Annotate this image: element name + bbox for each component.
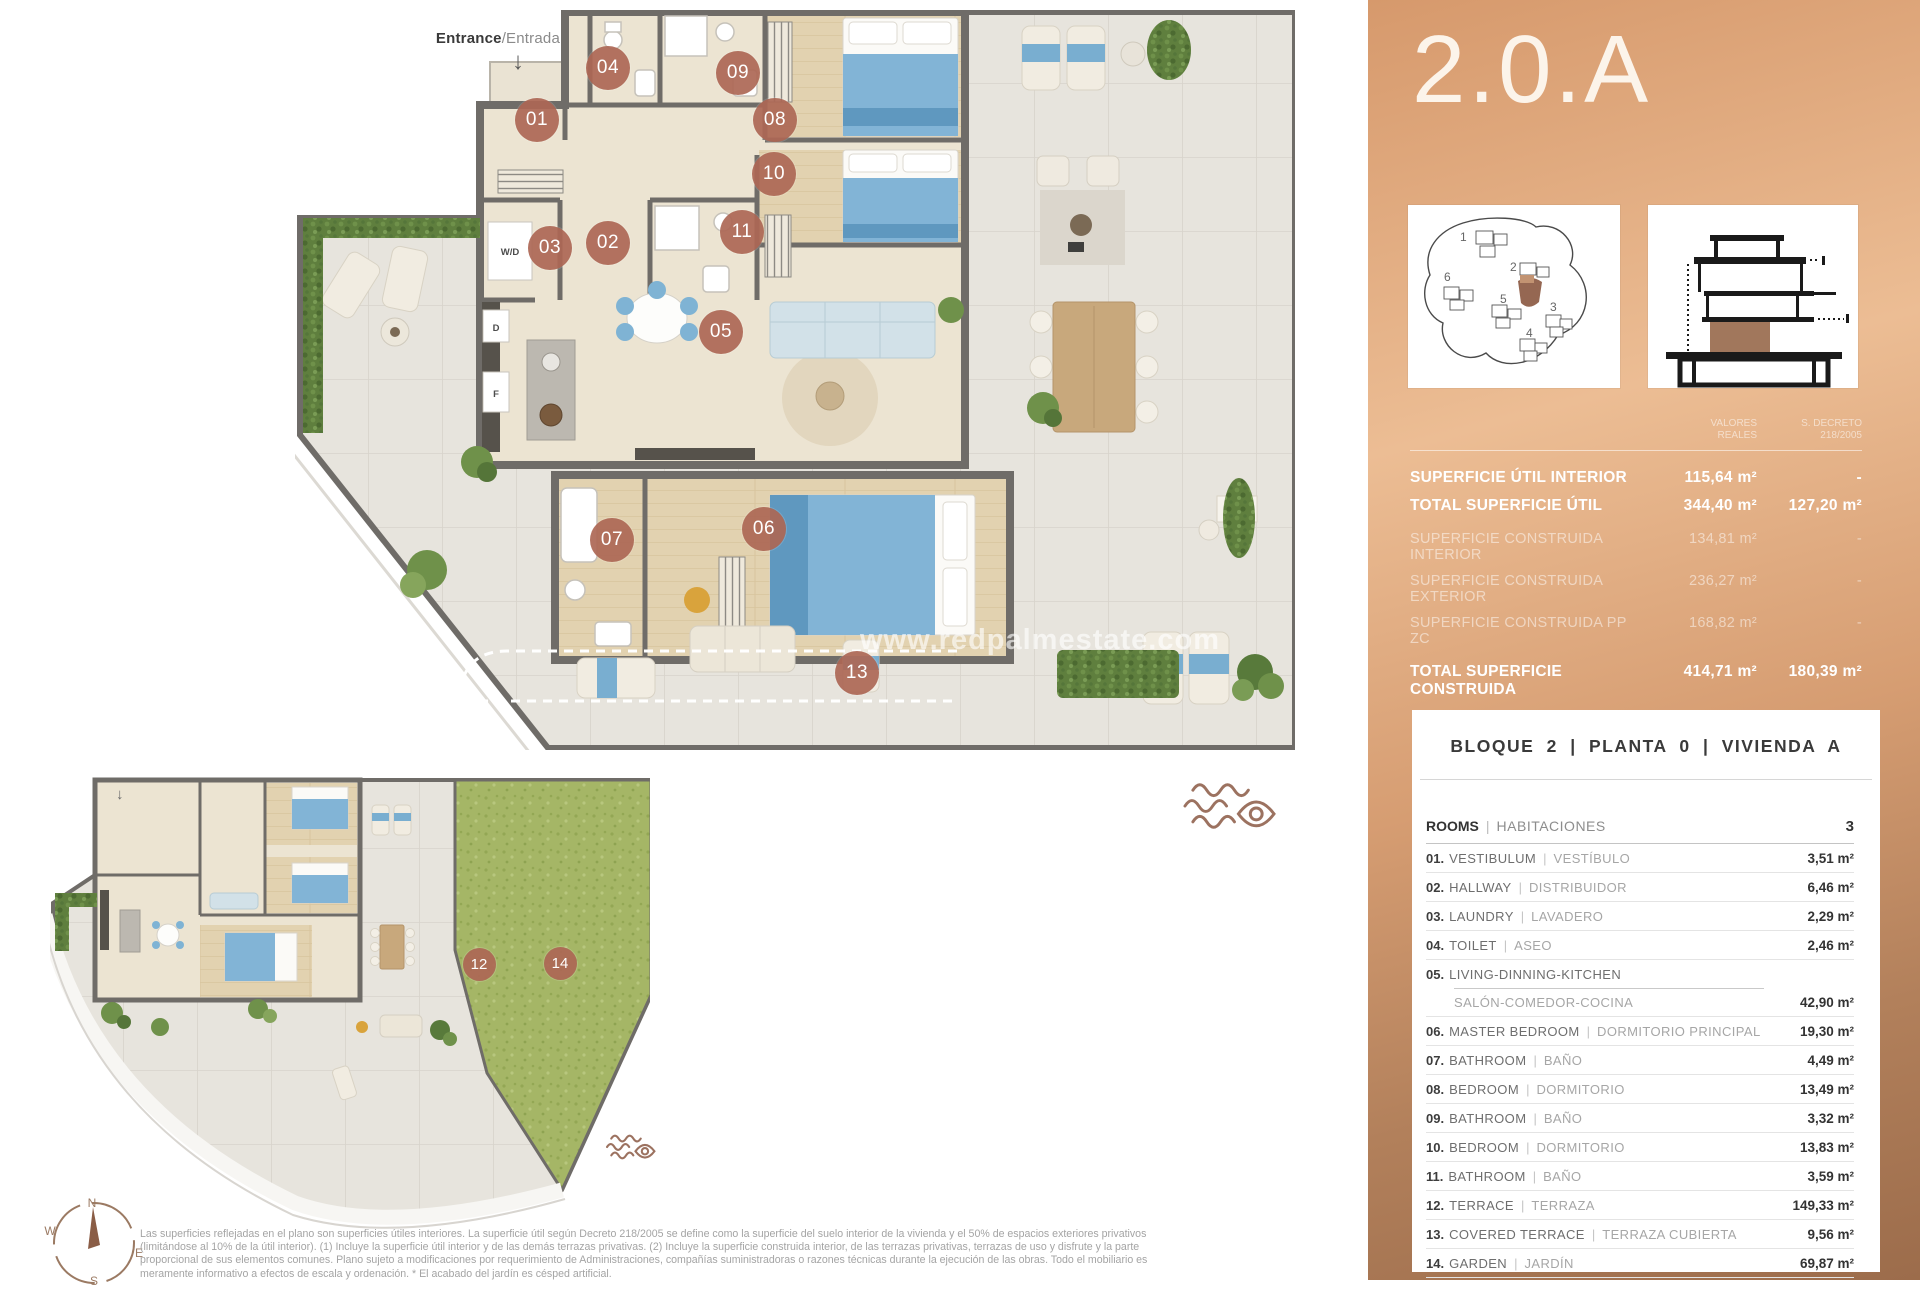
room-row: 02.HALLWAY|DISTRIBUIDOR6,46 m² <box>1426 873 1854 902</box>
bed-bedroom10 <box>843 150 958 242</box>
surface-row: SUPERFICIE CONSTRUIDA INTERIOR134,81 m²- <box>1410 531 1862 563</box>
tv-sideboard <box>635 448 755 460</box>
compass-rose: N W E S <box>42 1193 146 1285</box>
room-row: 09.BATHROOM|BAÑO3,32 m² <box>1426 1104 1854 1133</box>
watermark: www.redpalmestate.com <box>770 624 1310 657</box>
sea-view-icon-small <box>606 1133 656 1161</box>
block-header: BLOQUE 2 | PLANTA 0 | VIVIENDA A <box>1426 736 1866 757</box>
room-row: 12.TERRACE|TERRAZA149,33 m² <box>1426 1191 1854 1220</box>
room-row: 03.LAUNDRY|LAVADERO2,29 m² <box>1426 902 1854 931</box>
surface-rows: SUPERFICIE ÚTIL INTERIOR115,64 m²-TOTAL … <box>1410 469 1862 699</box>
coffee-table <box>816 382 844 410</box>
svg-text:1: 1 <box>1460 230 1467 244</box>
section-base <box>1680 359 1828 385</box>
building-section-diagram <box>1648 205 1858 388</box>
site-plan-diagram: 1 6 2 5 3 4 <box>1408 205 1620 388</box>
room-row: 06.MASTER BEDROOM|DORMITORIO PRINCIPAL19… <box>1426 1017 1854 1046</box>
surface-row: TOTAL SUPERFICIE ÚTIL344,40 m²127,20 m² <box>1410 497 1862 515</box>
svg-text:4: 4 <box>1526 326 1533 340</box>
disclaimer-line: proporcional de sus elementos comunes. P… <box>140 1254 1340 1267</box>
entrance-arrow-icon: ↓ <box>512 48 524 76</box>
disclaimer-line: meramente informativo a efectos de escal… <box>140 1268 1340 1281</box>
surface-table-headers: VALORES REALES S. DECRETO 218/2005 <box>1410 418 1862 442</box>
compass-w: W <box>44 1224 56 1238</box>
rooms-table: ROOMS | HABITACIONES 3 01.VESTIBULUM|VES… <box>1426 812 1854 1278</box>
fridge-label: F <box>493 389 499 400</box>
mini-apartment <box>95 780 360 1000</box>
room-row: 10.BEDROOM|DORMITORIO13,83 m² <box>1426 1133 1854 1162</box>
disclaimer-text: Las superficies reflejadas en el plano s… <box>140 1228 1340 1281</box>
compass-icon: N W E S <box>42 1193 146 1285</box>
room-row: 14.GARDEN|JARDÍN69,87 m² <box>1426 1249 1854 1278</box>
small-floor-plan-image <box>50 775 650 1240</box>
entrance-label-en: Entrance <box>436 30 502 47</box>
highlighted-floor <box>1710 322 1770 352</box>
surface-table: VALORES REALES S. DECRETO 218/2005 SUPER… <box>1410 418 1862 709</box>
room-row: 11.BATHROOM|BAÑO3,59 m² <box>1426 1162 1854 1191</box>
dishwasher-label: D <box>493 323 500 334</box>
rooms-panel: BLOQUE 2 | PLANTA 0 | VIVIENDA A ROOMS |… <box>1412 710 1880 1272</box>
surface-row: SUPERFICIE ÚTIL INTERIOR115,64 m²- <box>1410 469 1862 487</box>
bed-bedroom08 <box>843 18 958 136</box>
disclaimer-line: Las superficies reflejadas en el plano s… <box>140 1228 1340 1241</box>
bed-master-bedroom <box>770 495 975 635</box>
svg-text:6: 6 <box>1444 270 1451 284</box>
disclaimer-line: (limitándose al 10% de la útil interior)… <box>140 1241 1340 1254</box>
unit-title: 2.0.A <box>1412 22 1651 118</box>
rooms-table-header: ROOMS | HABITACIONES 3 <box>1426 812 1854 844</box>
surface-row: TOTAL SUPERFICIE CONSTRUIDA414,71 m²180,… <box>1410 663 1862 699</box>
room-row: 13.COVERED TERRACE|TERRAZA CUBIERTA9,56 … <box>1426 1220 1854 1249</box>
room-row: 07.BATHROOM|BAÑO4,49 m² <box>1426 1046 1854 1075</box>
entrance-walkway <box>490 62 563 107</box>
room-row: 04.TOILET|ASEO2,46 m² <box>1426 931 1854 960</box>
compass-needle <box>88 1207 100 1249</box>
svg-text:2: 2 <box>1510 260 1517 274</box>
laundry: W/D <box>488 222 532 280</box>
washer-dryer-label: W/D <box>501 247 520 258</box>
svg-text:3: 3 <box>1550 300 1557 314</box>
surface-row: SUPERFICIE CONSTRUIDA EXTERIOR236,27 m²- <box>1410 573 1862 605</box>
hedge-left <box>303 218 323 433</box>
rooms-count: 3 <box>1606 818 1854 835</box>
room-row: 05.LIVING-DINNING-KITCHENSALÓN-COMEDOR-C… <box>1426 960 1854 1017</box>
compass-n: N <box>88 1196 97 1210</box>
sea-view-icon <box>1183 780 1277 832</box>
dining-table-indoor <box>627 293 687 343</box>
hedge-top-left <box>303 218 480 238</box>
room-row: 08.BEDROOM|DORMITORIO13,49 m² <box>1426 1075 1854 1104</box>
small-floor-plan <box>50 775 650 1240</box>
sidebar: 2.0.A 1 6 2 5 3 4 <box>1368 0 1920 1280</box>
small-plan-arrow-icon: ↓ <box>116 786 124 803</box>
entrance-label: Entrance/Entrada <box>430 30 560 47</box>
sofa <box>770 302 935 358</box>
room-row: 01.VESTIBULUM|VESTÍBULO3,51 m² <box>1426 844 1854 873</box>
svg-text:5: 5 <box>1500 292 1507 306</box>
entrance-label-es: /Entrada <box>502 30 560 47</box>
surface-row: SUPERFICIE CONSTRUIDA PP ZC168,82 m²- <box>1410 615 1862 647</box>
hedge-bottom <box>1057 650 1179 698</box>
